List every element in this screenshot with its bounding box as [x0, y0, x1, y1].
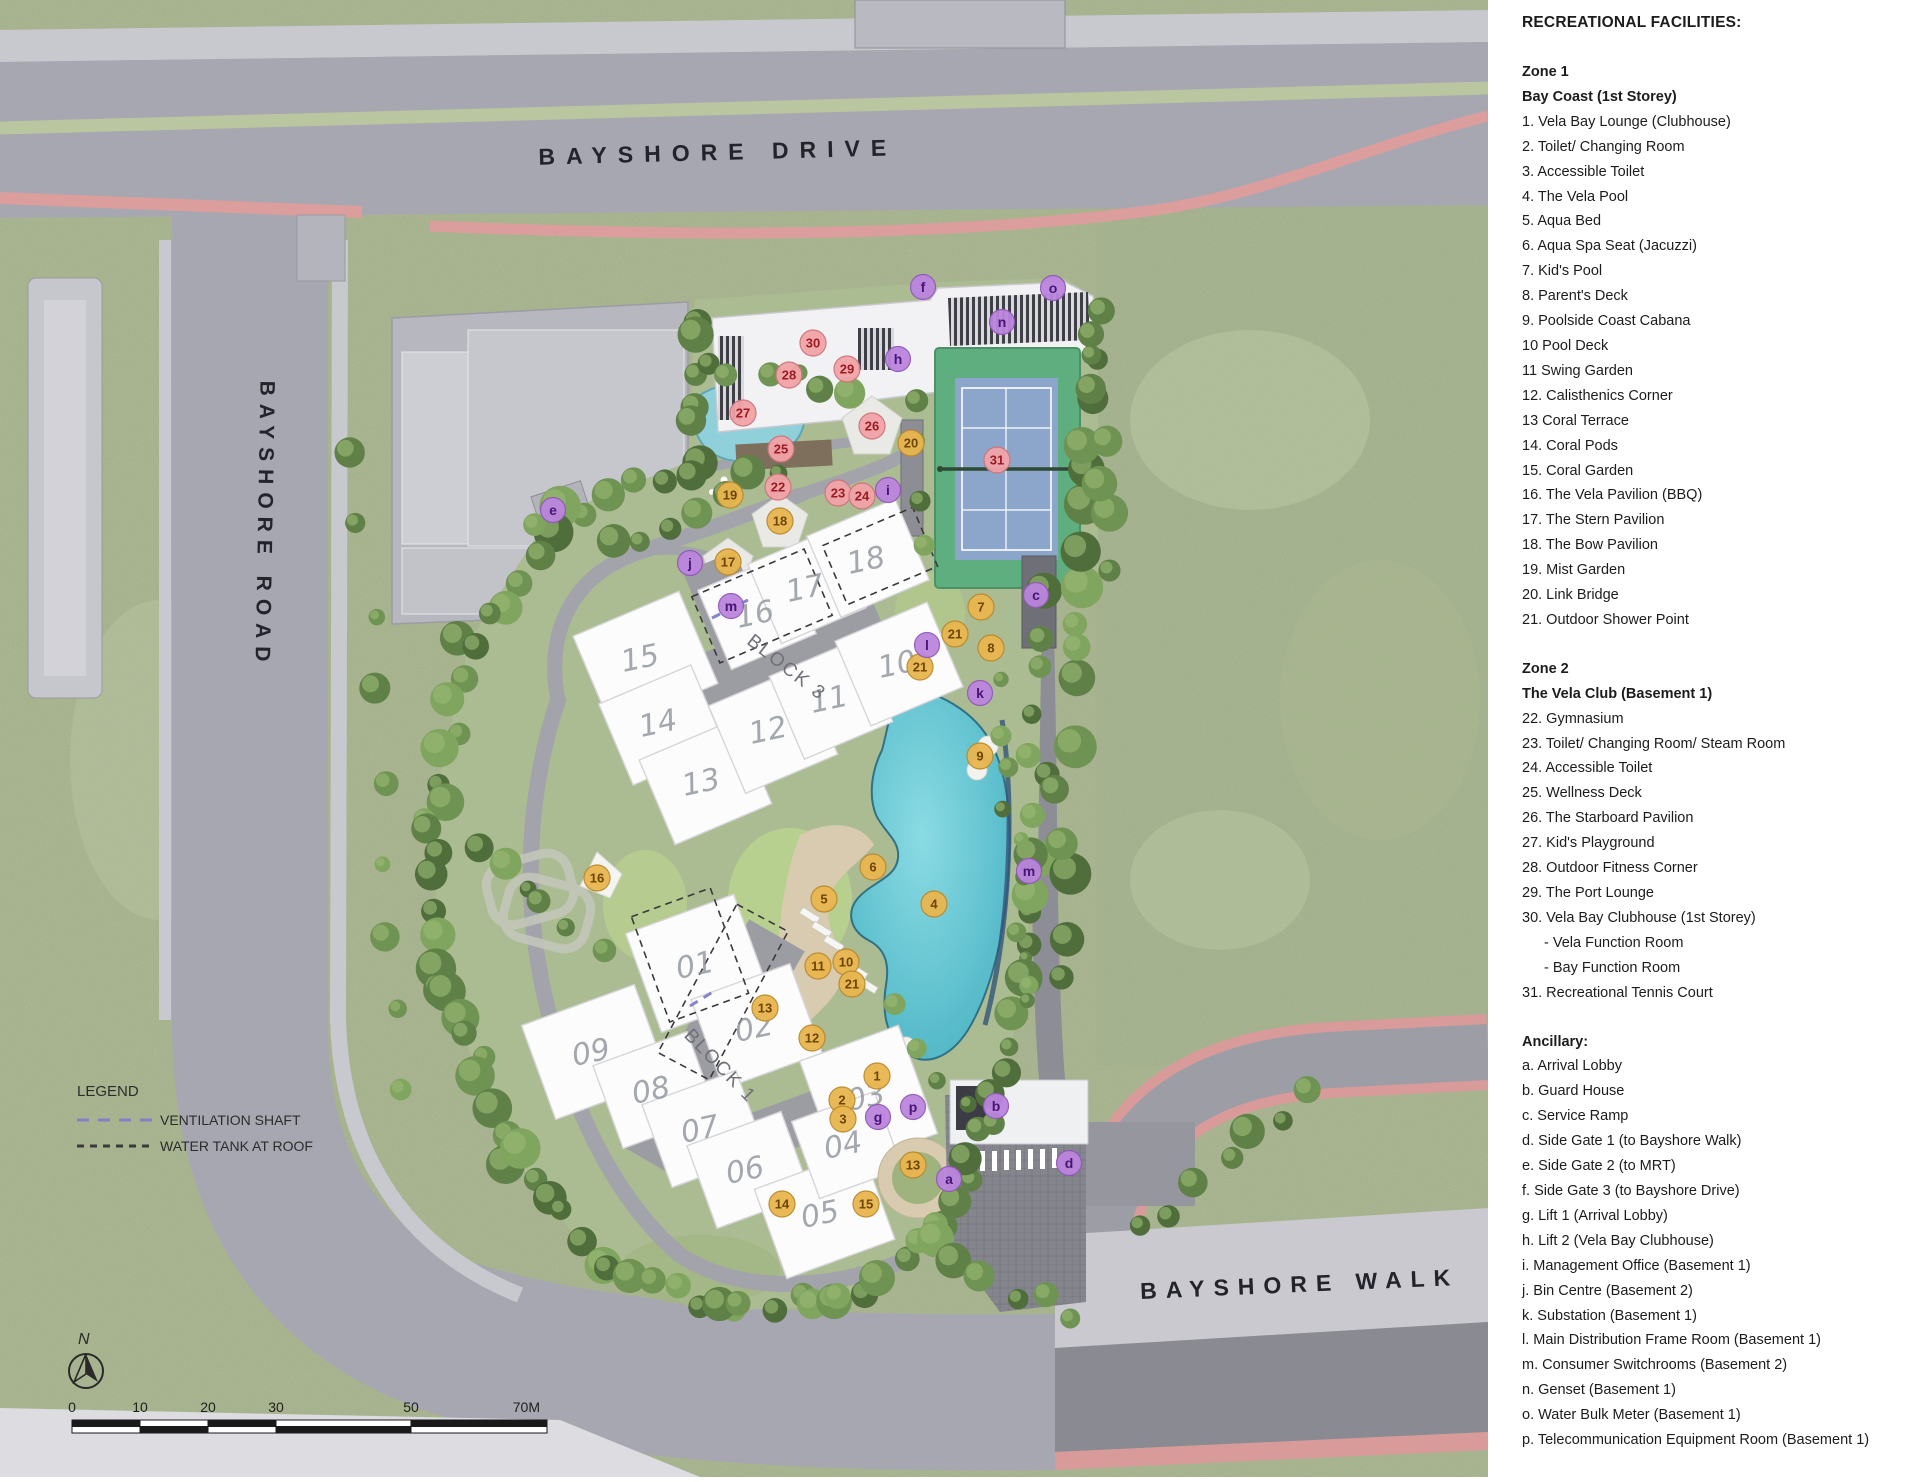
- map-marker-zone2-31: 31: [984, 447, 1010, 473]
- tree-icon: [914, 535, 935, 556]
- map-marker-zone2-22: 22: [765, 474, 791, 500]
- svg-text:16: 16: [590, 871, 604, 886]
- map-marker-ancillary-e: e: [541, 498, 566, 523]
- tree-icon: [665, 1273, 690, 1298]
- tree-icon: [681, 498, 712, 529]
- svg-text:27: 27: [736, 406, 750, 421]
- facility-item: 3. Accessible Toilet: [1522, 160, 1910, 185]
- tree-icon: [992, 1058, 1021, 1087]
- facility-item: 1. Vela Bay Lounge (Clubhouse): [1522, 110, 1910, 135]
- zone2-section: Zone 2 The Vela Club (Basement 1) 22. Gy…: [1522, 657, 1910, 1006]
- scale-label: 30: [268, 1399, 284, 1415]
- map-marker-zone2-29: 29: [834, 356, 860, 382]
- zone2-heading: Zone 2: [1522, 657, 1910, 682]
- tree-icon: [1078, 321, 1104, 347]
- svg-text:f: f: [921, 279, 926, 295]
- tree-icon: [806, 376, 833, 403]
- facility-item: 25. Wellness Deck: [1522, 781, 1910, 806]
- facility-item: i. Management Office (Basement 1): [1522, 1254, 1910, 1279]
- zone2-subheading: The Vela Club (Basement 1): [1522, 682, 1910, 707]
- tree-icon: [1016, 743, 1041, 768]
- map-marker-zone1-4: 4: [921, 891, 947, 917]
- map-marker-zone2-30: 30: [800, 330, 826, 356]
- tree-icon: [526, 541, 556, 571]
- svg-text:a: a: [945, 1171, 953, 1187]
- svg-text:26: 26: [865, 419, 879, 434]
- north-label: N: [78, 1331, 90, 1348]
- tree-icon: [451, 1021, 476, 1046]
- map-marker-zone1-14: 14: [769, 1191, 795, 1217]
- facility-item: 7. Kid's Pool: [1522, 259, 1910, 284]
- tree-icon: [1221, 1147, 1243, 1169]
- tree-icon: [345, 513, 365, 533]
- facility-item: 23. Toilet/ Changing Room/ Steam Room: [1522, 732, 1910, 757]
- tree-icon: [375, 856, 391, 872]
- tree-icon: [990, 725, 1011, 746]
- tree-icon: [964, 1261, 995, 1292]
- tree-icon: [1082, 345, 1102, 365]
- tree-icon: [884, 993, 906, 1015]
- facility-item: d. Side Gate 1 (to Bayshore Walk): [1522, 1129, 1910, 1154]
- svg-text:17: 17: [721, 555, 735, 570]
- svg-text:n: n: [998, 314, 1007, 330]
- tree-icon: [676, 460, 706, 490]
- facility-item: 28. Outdoor Fitness Corner: [1522, 856, 1910, 881]
- svg-text:28: 28: [782, 368, 796, 383]
- facilities-panel: RECREATIONAL FACILITIES: Zone 1 Bay Coas…: [1488, 0, 1920, 1477]
- tree-icon: [1230, 1114, 1265, 1149]
- map-marker-ancillary-b: b: [984, 1094, 1009, 1119]
- tree-icon: [909, 491, 930, 512]
- map-marker-ancillary-m: m: [1017, 859, 1042, 884]
- facility-item: j. Bin Centre (Basement 2): [1522, 1279, 1910, 1304]
- tree-icon: [621, 467, 646, 492]
- tree-icon: [1157, 1205, 1180, 1228]
- tree-icon: [389, 1000, 407, 1018]
- tree-icon: [1019, 951, 1032, 964]
- svg-text:b: b: [992, 1098, 1001, 1114]
- tree-icon: [1063, 612, 1087, 636]
- svg-text:1: 1: [873, 1069, 880, 1084]
- tree-icon: [1040, 775, 1069, 804]
- facility-item: 26. The Starboard Pavilion: [1522, 806, 1910, 831]
- tree-icon: [465, 833, 494, 862]
- tree-icon: [1061, 532, 1101, 572]
- tree-icon: [1049, 965, 1073, 989]
- tree-icon: [334, 437, 364, 467]
- facility-item: 31. Recreational Tennis Court: [1522, 981, 1910, 1006]
- facility-item: 27. Kid's Playground: [1522, 831, 1910, 856]
- svg-text:c: c: [1032, 587, 1040, 603]
- legend-item-ventilation: VENTILATION SHAFT: [160, 1112, 301, 1128]
- map-marker-zone1-12: 12: [799, 1025, 825, 1051]
- map-marker-zone1-21: 21: [839, 971, 865, 997]
- tree-icon: [653, 469, 677, 493]
- tree-icon: [1019, 976, 1038, 995]
- map-marker-zone1-3: 3: [830, 1106, 856, 1132]
- map-marker-ancillary-j: j: [678, 551, 703, 576]
- facility-item: - Vela Function Room: [1522, 931, 1910, 956]
- svg-text:5: 5: [820, 892, 827, 907]
- tree-icon: [479, 603, 501, 625]
- facility-item: 20. Link Bridge: [1522, 583, 1910, 608]
- map-marker-zone1-20: 20: [898, 430, 924, 456]
- facility-item: k. Substation (Basement 1): [1522, 1304, 1910, 1329]
- facility-item: 6. Aqua Spa Seat (Jacuzzi): [1522, 234, 1910, 259]
- tree-icon: [592, 478, 625, 511]
- facility-item: b. Guard House: [1522, 1079, 1910, 1104]
- tree-icon: [415, 858, 448, 891]
- tree-icon: [527, 889, 551, 913]
- tree-icon: [1000, 1038, 1019, 1057]
- svg-text:l: l: [925, 637, 929, 653]
- tree-icon: [1050, 922, 1085, 957]
- tree-icon: [1007, 922, 1027, 942]
- facility-item: - Bay Function Room: [1522, 956, 1910, 981]
- facility-item: g. Lift 1 (Arrival Lobby): [1522, 1204, 1910, 1229]
- facility-item: 12. Calisthenics Corner: [1522, 384, 1910, 409]
- svg-text:22: 22: [771, 480, 785, 495]
- map-marker-zone2-27: 27: [730, 400, 756, 426]
- facility-item: 11 Swing Garden: [1522, 359, 1910, 384]
- facility-item: o. Water Bulk Meter (Basement 1): [1522, 1403, 1910, 1428]
- map-marker-zone1-5: 5: [811, 886, 837, 912]
- tree-icon: [960, 1096, 977, 1113]
- tree-icon: [726, 1291, 751, 1316]
- tree-icon: [928, 1072, 946, 1090]
- tree-icon: [639, 1267, 666, 1294]
- tree-icon: [859, 1260, 895, 1296]
- map-marker-zone1-9: 9: [967, 743, 993, 769]
- facility-item: n. Genset (Basement 1): [1522, 1378, 1910, 1403]
- svg-text:d: d: [1065, 1155, 1074, 1171]
- svg-text:15: 15: [859, 1197, 873, 1212]
- tree-icon: [1029, 655, 1052, 678]
- tree-icon: [763, 1298, 788, 1323]
- facility-item: f. Side Gate 3 (to Bayshore Drive): [1522, 1179, 1910, 1204]
- svg-text:14: 14: [775, 1197, 790, 1212]
- map-marker-ancillary-o: o: [1041, 276, 1066, 301]
- tree-icon: [370, 922, 399, 951]
- facility-item: c. Service Ramp: [1522, 1104, 1910, 1129]
- svg-text:29: 29: [840, 362, 854, 377]
- facility-item: 24. Accessible Toilet: [1522, 756, 1910, 781]
- tree-icon: [462, 633, 489, 660]
- tree-icon: [1020, 803, 1045, 828]
- svg-text:m: m: [725, 598, 737, 614]
- scale-label: 10: [132, 1399, 148, 1415]
- map-marker-zone1-19: 19: [717, 482, 743, 508]
- svg-text:e: e: [549, 502, 557, 518]
- tree-icon: [905, 389, 928, 412]
- facility-item: 29. The Port Lounge: [1522, 881, 1910, 906]
- tree-icon: [1178, 1168, 1208, 1198]
- scale-label: 70M: [513, 1399, 540, 1415]
- svg-text:21: 21: [913, 660, 927, 675]
- tree-icon: [1098, 559, 1120, 581]
- facility-item: 18. The Bow Pavilion: [1522, 533, 1910, 558]
- tree-icon: [1294, 1076, 1321, 1103]
- tree-icon: [1034, 1282, 1059, 1307]
- top-center-building: [855, 0, 1065, 48]
- facility-item: 10 Pool Deck: [1522, 334, 1910, 359]
- tree-icon: [1028, 626, 1054, 652]
- facility-item: 19. Mist Garden: [1522, 558, 1910, 583]
- tree-icon: [1014, 832, 1029, 847]
- zone1-subheading: Bay Coast (1st Storey): [1522, 85, 1910, 110]
- map-marker-ancillary-g: g: [866, 1105, 891, 1130]
- tree-icon: [1008, 1289, 1028, 1309]
- svg-text:13: 13: [906, 1158, 920, 1173]
- tree-icon: [824, 1283, 850, 1309]
- svg-text:30: 30: [806, 336, 820, 351]
- ancillary-list: a. Arrival Lobbyb. Guard Housec. Service…: [1522, 1054, 1910, 1453]
- driveway: [1085, 1122, 1195, 1206]
- tree-icon: [714, 363, 737, 386]
- svg-text:31: 31: [990, 453, 1004, 468]
- map-marker-ancillary-f: f: [911, 275, 936, 300]
- tree-icon: [1063, 633, 1090, 660]
- facility-item: 17. The Stern Pavilion: [1522, 508, 1910, 533]
- map-marker-ancillary-a: a: [937, 1167, 962, 1192]
- svg-text:11: 11: [811, 959, 825, 974]
- tree-icon: [1076, 374, 1106, 404]
- legend-item-watertank: WATER TANK AT ROOF: [160, 1138, 313, 1154]
- tree-icon: [1045, 828, 1077, 860]
- svg-text:6: 6: [869, 860, 876, 875]
- tree-icon: [374, 771, 399, 796]
- tree-icon: [490, 848, 522, 880]
- tree-icon: [1082, 466, 1118, 502]
- map-marker-zone2-26: 26: [859, 413, 885, 439]
- svg-text:21: 21: [845, 977, 859, 992]
- svg-text:4: 4: [930, 897, 938, 912]
- svg-text:k: k: [976, 685, 984, 701]
- facility-item: 30. Vela Bay Clubhouse (1st Storey): [1522, 906, 1910, 931]
- facility-item: 2. Toilet/ Changing Room: [1522, 135, 1910, 160]
- map-marker-zone1-6: 6: [860, 854, 886, 880]
- tree-icon: [630, 532, 650, 552]
- svg-text:p: p: [909, 1099, 918, 1115]
- map-marker-zone1-7: 7: [968, 594, 994, 620]
- map-marker-ancillary-i: i: [876, 478, 901, 503]
- svg-text:13: 13: [758, 1001, 772, 1016]
- map-marker-ancillary-m: m: [719, 594, 744, 619]
- facility-item: l. Main Distribution Frame Room (Basemen…: [1522, 1328, 1910, 1353]
- svg-text:10: 10: [839, 955, 853, 970]
- svg-text:h: h: [894, 351, 903, 367]
- tree-icon: [659, 518, 681, 540]
- tree-icon: [420, 729, 458, 767]
- map-marker-zone1-15: 15: [853, 1191, 879, 1217]
- svg-text:19: 19: [723, 488, 737, 503]
- map-marker-ancillary-h: h: [886, 347, 911, 372]
- tree-icon: [430, 682, 464, 716]
- svg-text:3: 3: [839, 1112, 846, 1127]
- tree-icon: [994, 801, 1011, 818]
- tree-icon: [420, 917, 455, 952]
- map-marker-zone1-8: 8: [978, 635, 1004, 661]
- map-marker-zone1-21: 21: [942, 621, 968, 647]
- legend-title: LEGEND: [77, 1083, 139, 1100]
- svg-text:8: 8: [987, 641, 994, 656]
- tree-icon: [1049, 853, 1091, 895]
- ancillary-section: Ancillary: a. Arrival Lobbyb. Guard Hous…: [1522, 1030, 1910, 1453]
- svg-text:24: 24: [855, 489, 870, 504]
- tree-icon: [1022, 704, 1041, 723]
- tree-icon: [1060, 1309, 1080, 1329]
- map-marker-zone1-1: 1: [864, 1063, 890, 1089]
- tree-icon: [1088, 297, 1115, 324]
- tree-icon: [998, 757, 1018, 777]
- tree-icon: [1059, 659, 1096, 696]
- scale-label: 50: [403, 1399, 419, 1415]
- map-marker-zone2-25: 25: [768, 436, 794, 462]
- svg-text:g: g: [874, 1109, 883, 1125]
- tree-icon: [676, 405, 706, 435]
- zone1-list: 1. Vela Bay Lounge (Clubhouse)2. Toilet/…: [1522, 110, 1910, 633]
- tree-icon: [1130, 1215, 1150, 1235]
- facility-item: 22. Gymnasium: [1522, 707, 1910, 732]
- facility-item: 4. The Vela Pool: [1522, 185, 1910, 210]
- svg-text:o: o: [1049, 280, 1058, 296]
- tree-icon: [557, 918, 575, 936]
- svg-text:m: m: [1023, 863, 1035, 879]
- map-marker-zone1-13: 13: [900, 1152, 926, 1178]
- svg-text:20: 20: [904, 436, 918, 451]
- svg-text:23: 23: [831, 486, 845, 501]
- tree-icon: [678, 317, 714, 353]
- tree-icon: [500, 1128, 541, 1169]
- tree-icon: [369, 609, 386, 626]
- tree-icon: [1273, 1111, 1293, 1131]
- tree-icon: [1054, 725, 1097, 768]
- svg-text:12: 12: [805, 1031, 819, 1046]
- svg-text:7: 7: [977, 600, 984, 615]
- map-marker-zone1-16: 16: [584, 865, 610, 891]
- tree-icon: [597, 524, 631, 558]
- site-plan-map: 151617181413121110010209080706050304BLOC…: [0, 0, 1488, 1477]
- map-marker-zone1-11: 11: [805, 953, 831, 979]
- facility-item: p. Telecommunication Equipment Room (Bas…: [1522, 1428, 1910, 1453]
- facility-item: 16. The Vela Pavilion (BBQ): [1522, 483, 1910, 508]
- svg-text:18: 18: [773, 514, 787, 529]
- svg-text:9: 9: [976, 749, 983, 764]
- svg-text:i: i: [886, 482, 890, 498]
- panel-title: RECREATIONAL FACILITIES:: [1522, 14, 1910, 32]
- svg-text:j: j: [687, 555, 692, 571]
- tree-icon: [593, 939, 617, 963]
- map-marker-ancillary-k: k: [968, 681, 993, 706]
- facility-item: 8. Parent's Deck: [1522, 284, 1910, 309]
- tree-icon: [411, 813, 441, 843]
- facility-item: h. Lift 2 (Vela Bay Clubhouse): [1522, 1229, 1910, 1254]
- map-marker-ancillary-c: c: [1024, 583, 1049, 608]
- map-marker-ancillary-p: p: [901, 1095, 926, 1120]
- tree-icon: [359, 673, 390, 704]
- bayshore-drive-road: [0, 42, 1488, 218]
- facility-item: 13 Coral Terrace: [1522, 409, 1910, 434]
- map-marker-zone1-18: 18: [767, 508, 793, 534]
- tree-icon: [390, 1079, 412, 1101]
- tree-icon: [1020, 993, 1035, 1008]
- facility-item: 14. Coral Pods: [1522, 434, 1910, 459]
- facility-item: e. Side Gate 2 (to MRT): [1522, 1154, 1910, 1179]
- facility-item: m. Consumer Switchrooms (Basement 2): [1522, 1353, 1910, 1378]
- zone1-section: Zone 1 Bay Coast (1st Storey) 1. Vela Ba…: [1522, 60, 1910, 633]
- map-marker-ancillary-l: l: [915, 633, 940, 658]
- zone2-list: 22. Gymnasium23. Toilet/ Changing Room/ …: [1522, 707, 1910, 1006]
- tree-icon: [1091, 426, 1122, 457]
- louver-roof-genset: [948, 292, 1090, 346]
- map-marker-zone2-28: 28: [776, 362, 802, 388]
- map-marker-zone2-24: 24: [849, 483, 875, 509]
- ancillary-heading: Ancillary:: [1522, 1030, 1910, 1055]
- svg-text:2: 2: [838, 1093, 845, 1108]
- scale-label: 20: [200, 1399, 216, 1415]
- map-marker-ancillary-d: d: [1057, 1151, 1082, 1176]
- facility-item: 15. Coral Garden: [1522, 459, 1910, 484]
- map-marker-ancillary-n: n: [990, 310, 1015, 335]
- facility-item: 9. Poolside Coast Cabana: [1522, 309, 1910, 334]
- facility-item: a. Arrival Lobby: [1522, 1054, 1910, 1079]
- facility-item: 5. Aqua Bed: [1522, 209, 1910, 234]
- map-marker-zone1-13: 13: [752, 995, 778, 1021]
- facility-item: 21. Outdoor Shower Point: [1522, 608, 1910, 633]
- tree-icon: [993, 672, 1008, 687]
- svg-text:25: 25: [774, 442, 788, 457]
- tree-icon: [1061, 566, 1103, 608]
- tree-icon: [550, 1199, 571, 1220]
- scale-label: 0: [68, 1399, 76, 1415]
- map-marker-zone2-23: 23: [825, 480, 851, 506]
- tree-icon: [907, 1038, 927, 1058]
- zone1-heading: Zone 1: [1522, 60, 1910, 85]
- map-marker-zone1-17: 17: [715, 549, 741, 575]
- svg-text:21: 21: [948, 627, 962, 642]
